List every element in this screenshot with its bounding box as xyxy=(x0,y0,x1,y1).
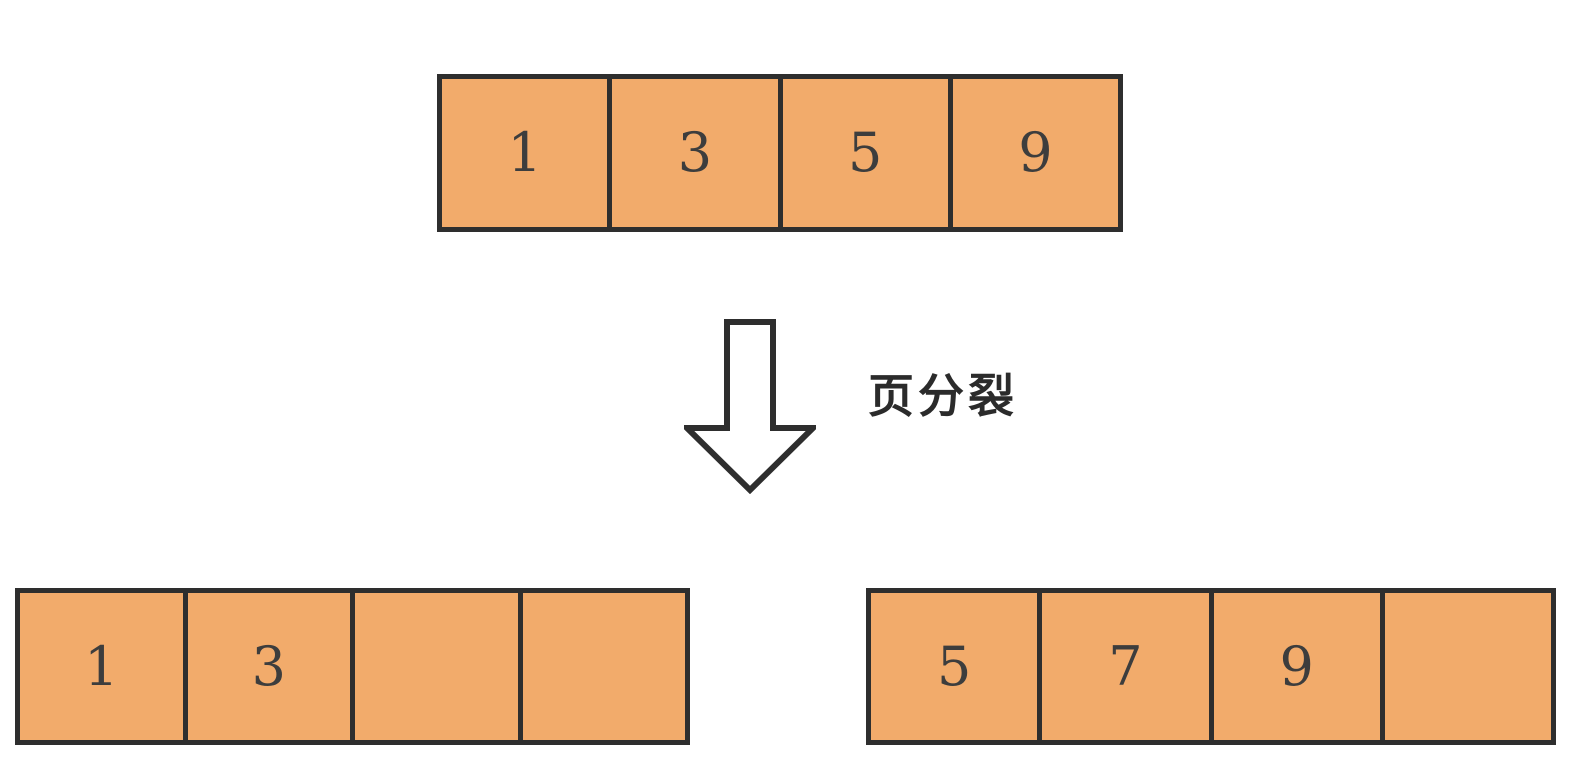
down-arrow-icon xyxy=(684,318,816,494)
page-cell: 1 xyxy=(437,74,612,232)
page-cell: 5 xyxy=(778,74,953,232)
page-cell: 9 xyxy=(948,74,1123,232)
page-cell: 9 xyxy=(1209,588,1385,745)
page-after-split-right: 5 7 9 xyxy=(866,588,1556,745)
page-cell: 5 xyxy=(866,588,1042,745)
page-cell: 7 xyxy=(1037,588,1213,745)
page-after-split-left: 1 3 xyxy=(15,588,690,745)
page-cell: 3 xyxy=(607,74,782,232)
page-cell: 3 xyxy=(183,588,356,745)
page-before-split: 1 3 5 9 xyxy=(437,74,1123,232)
page-split-diagram: 1 3 5 9 页分裂 1 3 5 7 9 xyxy=(0,0,1584,782)
page-cell xyxy=(518,588,691,745)
page-split-label: 页分裂 xyxy=(868,360,1018,426)
page-cell: 1 xyxy=(15,588,188,745)
page-cell xyxy=(1380,588,1556,745)
page-cell xyxy=(350,588,523,745)
